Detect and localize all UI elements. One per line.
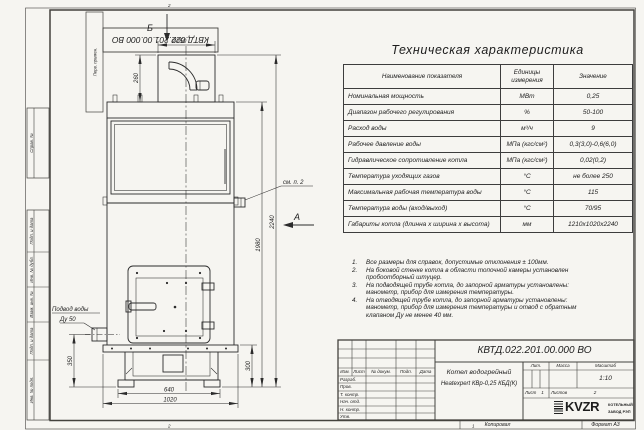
spec-table: Наименование показателя Единицы измерени… — [343, 64, 633, 233]
spec-cell-value: не более 250 — [554, 169, 633, 185]
dimension-annotations: Ø250 260 350 640 1020 300 1980 2240 см. … — [52, 39, 313, 408]
margin-label-podp2: Подп. и дата — [29, 327, 34, 355]
note-text: На боковой стенке котла в области топочн… — [366, 267, 578, 282]
spec-cell-name: Номинальная мощность — [344, 89, 501, 105]
spec-header-row: Наименование показателя Единицы измерени… — [344, 65, 633, 89]
spec-row: Температура уходящих газов°Сне более 250 — [344, 169, 633, 185]
margin-label-inv-dubl: Инв. № дубл. — [29, 256, 34, 282]
footer-copied-label: Копировал — [470, 422, 525, 428]
spec-cell-units: % — [501, 105, 554, 121]
callout-water-dn: Ду 50 — [59, 317, 76, 323]
boiler-front-view — [85, 46, 245, 392]
col-izm: Изм. — [338, 368, 352, 376]
spec-row: Номинальная мощностьМВт0,25 — [344, 89, 633, 105]
note-number: 1. — [352, 259, 366, 267]
dim-body-height: 1980 — [256, 238, 262, 252]
margin-stamp-boxes: Справ. № Подп. и дата Инв. № дубл. Взам.… — [27, 12, 103, 420]
listov-value: 2 — [580, 388, 610, 398]
col-data: Дата — [416, 368, 435, 376]
row-prov: Пров. — [340, 383, 352, 391]
margin-label-vzam: Взам. инв. № — [29, 291, 34, 318]
note-item: 2.На боковой стенке котла в области топо… — [352, 267, 578, 282]
row-nach-otd: Нач. отд. — [340, 398, 360, 406]
spec-cell-units: МПа (кгс/см²) — [501, 153, 554, 169]
kvzr-logo-sub1: КОТЕЛЬНЫЙ — [608, 402, 633, 408]
title-block-doc-number: КВТД.022.201.00.000 ВО — [435, 340, 634, 362]
margin-label-perv: Перв. примен. — [93, 48, 98, 77]
spec-cell-value: 1210х1020х2240 — [554, 217, 633, 233]
spec-header-units: Единицы измерения — [501, 65, 554, 89]
list-value: 1 — [537, 388, 548, 398]
kvzr-logo-icon — [554, 401, 563, 414]
note-item: 4.На отводящей трубе котла, до запорной … — [352, 297, 578, 320]
masshtab-label: Масштаб — [577, 362, 634, 370]
spec-section: Техническая характеристика Наименование … — [343, 43, 632, 233]
spec-row: Расход водым³/ч9 — [344, 121, 633, 137]
lit-label: Лит. — [523, 362, 549, 370]
spec-cell-name: Максимальная рабочая температура воды — [344, 185, 501, 201]
kvzr-logo-sub2: ЗАВОД РЭП — [608, 409, 631, 415]
callout-water-supply: Подвод воды — [52, 307, 89, 313]
spec-cell-units: м³/ч — [501, 121, 554, 137]
callout-see-note: см. п. 2 — [283, 180, 304, 186]
dim-total-height: 2240 — [270, 215, 276, 230]
col-podp: Подп. — [396, 368, 416, 376]
note-item: 1.Все размеры для справок, допустимые от… — [352, 259, 578, 267]
spec-title: Техническая характеристика — [343, 43, 632, 57]
note-text: На подводящей трубе котла, до запорной а… — [366, 282, 578, 297]
spec-cell-value: 50-100 — [554, 105, 633, 121]
technical-drawing-sheet: Справ. № Подп. и дата Инв. № дубл. Взам.… — [0, 0, 644, 430]
note-number: 3. — [352, 282, 366, 297]
note-text: Все размеры для справок, допустимые откл… — [366, 259, 578, 267]
spec-row: Гидравлическое сопротивление котлаМПа (к… — [344, 153, 633, 169]
margin-label-sprav: Справ. № — [29, 133, 34, 153]
note-number: 2. — [352, 267, 366, 282]
dim-chimney-height: 260 — [134, 72, 140, 84]
note-text: На отводящей трубе котла, до запорной ар… — [366, 297, 578, 320]
massa-label: Масса — [549, 362, 577, 370]
spec-cell-name: Гидравлическое сопротивление котла — [344, 153, 501, 169]
spec-row: Максимальная рабочая температура воды°С1… — [344, 185, 633, 201]
spec-cell-units: °С — [501, 201, 554, 217]
product-name-line1: Котел водогрейный — [437, 369, 521, 376]
spec-cell-name: Рабочее давление воды — [344, 137, 501, 153]
spec-header-name: Наименование показателя — [344, 65, 501, 89]
spec-cell-value: 9 — [554, 121, 633, 137]
product-name-line2: Heatexpert КВр-0,25 КБД(К) — [435, 381, 523, 387]
dim-feet-span: 640 — [164, 388, 175, 394]
top-doc-number-box: КВТД.022.201.00.000 ВО — [103, 28, 218, 52]
margin-label-inv-podl: Инв. № подл. — [29, 377, 34, 404]
dim-base-height: 300 — [246, 360, 252, 371]
spec-cell-value: 0,02(0,2) — [554, 153, 633, 169]
rotated-doc-number: КВТД.022.201.00.000 ВО — [112, 35, 209, 45]
spec-row: Габариты котла (длинна х ширина х высота… — [344, 217, 633, 233]
view-label-b: Б — [147, 23, 153, 33]
spec-cell-value: 70/95 — [554, 201, 633, 217]
col-list: Лист — [352, 368, 366, 376]
dim-width: 1020 — [163, 398, 177, 404]
spec-cell-units: °С — [501, 169, 554, 185]
view-label-a: А — [293, 212, 300, 222]
footer-format-label: Формат А3 — [583, 422, 628, 428]
spec-header-value: Значение — [554, 65, 633, 89]
spec-cell-name: Диапазон рабочего регулирования — [344, 105, 501, 121]
row-utv: Утв. — [340, 413, 350, 421]
note-number: 4. — [352, 297, 366, 320]
zone-bottom-left: 2 — [167, 424, 171, 429]
notes-list: 1.Все размеры для справок, допустимые от… — [352, 259, 578, 319]
spec-cell-name: Расход воды — [344, 121, 501, 137]
spec-cell-units: °С — [501, 185, 554, 201]
spec-cell-name: Температура воды (вход/выход) — [344, 201, 501, 217]
spec-cell-value: 0,3(3,0)-0,6(6,0) — [554, 137, 633, 153]
spec-cell-name: Габариты котла (длинна х ширина х высота… — [344, 217, 501, 233]
list-label: Лист — [525, 388, 536, 398]
spec-cell-value: 115 — [554, 185, 633, 201]
view-arrow-left-icon — [283, 222, 293, 228]
spec-row: Рабочее давление водыМПа (кгс/см²)0,3(3,… — [344, 137, 633, 153]
spec-row: Диапазон рабочего регулирования%50-100 — [344, 105, 633, 121]
dim-chimney-diameter: Ø250 — [171, 39, 187, 45]
col-n-dokum: № докум. — [366, 368, 396, 376]
sp ec-cell-value: 0,25 — [554, 89, 633, 105]
spec-cell-units: МВт — [501, 89, 554, 105]
kvzr-logo-text: KVZR — [565, 399, 599, 415]
spec-cell-units: мм — [501, 217, 554, 233]
margin-label-podp1: Подп. и дата — [29, 217, 34, 245]
spec-cell-units: МПа (кгс/см²) — [501, 137, 554, 153]
spec-row: Температура воды (вход/выход)°С70/95 — [344, 201, 633, 217]
dim-inlet-height: 350 — [68, 355, 74, 366]
spec-cell-name: Температура уходящих газов — [344, 169, 501, 185]
zone-top: 2 — [167, 3, 171, 8]
scale-value: 1:10 — [577, 370, 634, 388]
note-item: 3.На подводящей трубе котла, до запорной… — [352, 282, 578, 297]
listov-label: Листов — [551, 388, 567, 398]
